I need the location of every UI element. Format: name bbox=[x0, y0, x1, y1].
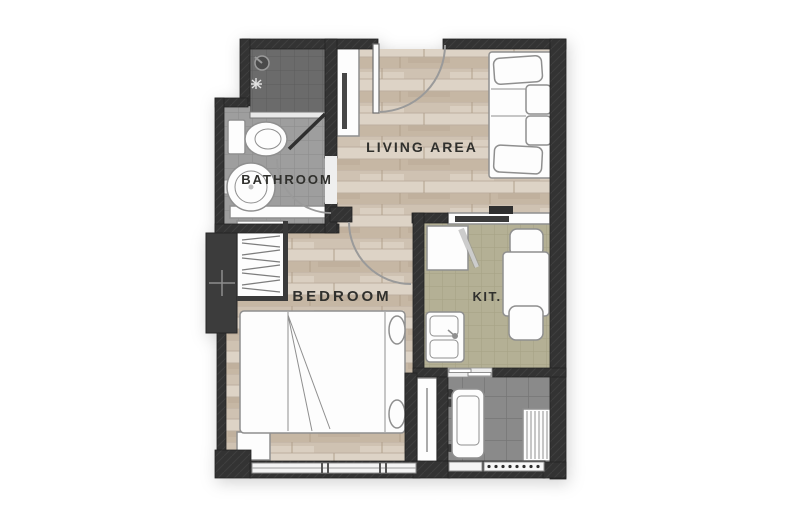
condenser-unit bbox=[523, 409, 552, 461]
sofa-back-cushion-1 bbox=[526, 85, 551, 114]
sofa-arm-top bbox=[493, 55, 543, 84]
wall-kitchen-bottom-left bbox=[413, 368, 448, 377]
wall-top-right bbox=[443, 39, 566, 49]
sofa bbox=[489, 52, 553, 178]
toilet-bowl-inner bbox=[255, 129, 281, 149]
bathroom-label: BATHROOM bbox=[241, 172, 333, 187]
entrance-door-leaf bbox=[373, 44, 379, 113]
floorplan-page: LIVING AREA BATHROOM BEDROOM KIT. bbox=[0, 0, 800, 520]
shower-drain-icon bbox=[251, 78, 262, 89]
tv-bar bbox=[489, 206, 513, 214]
wall-kitchen-left bbox=[413, 213, 424, 375]
bed-pillow-bottom bbox=[389, 400, 405, 428]
wall-left-upper bbox=[240, 39, 250, 106]
tv-console bbox=[337, 48, 359, 136]
kitchen-label: KIT. bbox=[472, 289, 501, 304]
wall-bottom-mid-pillar bbox=[413, 461, 450, 478]
tv-on-console bbox=[342, 73, 347, 129]
bed-pillow-top bbox=[389, 316, 405, 344]
wall-kitchen-bottom-right bbox=[492, 368, 566, 377]
bed-mattress bbox=[240, 311, 405, 433]
wall-balcony-left bbox=[437, 377, 448, 463]
toilet-tank bbox=[228, 120, 245, 154]
wall-bedroom-balcony-divider bbox=[405, 373, 417, 463]
wardrobe-bottom-wall bbox=[237, 296, 288, 301]
water-heater bbox=[446, 389, 484, 458]
bedroom-label: BEDROOM bbox=[292, 288, 391, 305]
dining-set bbox=[503, 229, 549, 340]
wall-bottom-left-corner bbox=[215, 450, 251, 478]
bedroom-window bbox=[252, 463, 416, 473]
wall-corridor-stub bbox=[330, 207, 352, 222]
wall-bathroom-bottom bbox=[215, 224, 339, 233]
heater-panel bbox=[457, 396, 479, 445]
wardrobe-side-wall bbox=[283, 221, 288, 300]
wall-top-left bbox=[242, 39, 378, 49]
floorplan-drawing: LIVING AREA BATHROOM BEDROOM KIT. bbox=[0, 0, 800, 520]
sink-bowl-bottom bbox=[430, 340, 458, 358]
dining-chair-bottom bbox=[509, 306, 543, 340]
wall-right bbox=[550, 39, 566, 479]
kitchen-sink bbox=[426, 312, 464, 362]
wall-bathroom-right-upper bbox=[325, 39, 337, 158]
wall-bottom-right-corner bbox=[543, 462, 566, 478]
balcony-sliding-door bbox=[448, 368, 492, 377]
service-shaft bbox=[206, 233, 237, 333]
shower-glass-strip bbox=[250, 112, 325, 118]
living-area-label: LIVING AREA bbox=[366, 139, 478, 155]
sofa-back-cushion-2 bbox=[526, 116, 551, 145]
sink-bowl-top bbox=[430, 316, 458, 336]
counter-appliance bbox=[455, 216, 509, 222]
sofa-arm-bottom bbox=[493, 145, 542, 174]
bed bbox=[240, 311, 405, 433]
balcony-railing bbox=[449, 462, 544, 471]
wall-bathroom-left bbox=[215, 98, 224, 234]
